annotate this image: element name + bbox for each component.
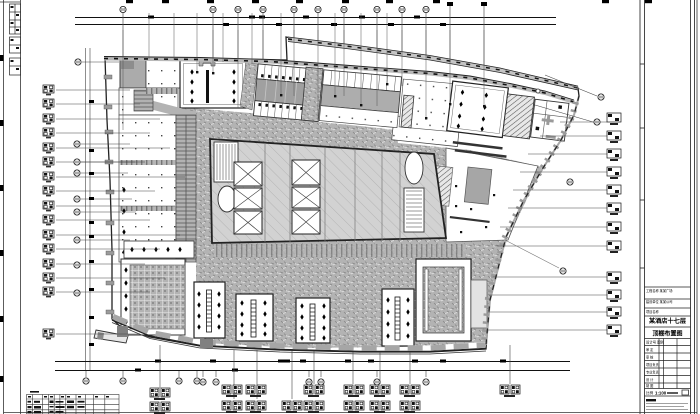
svg-text:工程名称 某某广场: 工程名称 某某广场	[646, 288, 672, 293]
svg-text:1:100: 1:100	[655, 391, 667, 396]
svg-text:设计号 图别: 设计号 图别	[646, 340, 665, 345]
svg-text:比例: 比例	[646, 390, 654, 395]
svg-text:审 核: 审 核	[646, 355, 654, 360]
svg-text:建设单位 某某公司: 建设单位 某某公司	[646, 299, 672, 304]
svg-text:设 计: 设 计	[646, 377, 654, 382]
svg-text:专业负责: 专业负责	[646, 370, 659, 375]
svg-text:项目负责: 项目负责	[646, 362, 659, 367]
svg-text:某酒店十七层: 某酒店十七层	[648, 317, 686, 325]
svg-text:审 定: 审 定	[646, 347, 654, 352]
svg-text:制 图: 制 图	[646, 383, 653, 388]
svg-text:顶棚布置图: 顶棚布置图	[652, 330, 682, 338]
svg-text:项目名称: 项目名称	[646, 309, 660, 314]
